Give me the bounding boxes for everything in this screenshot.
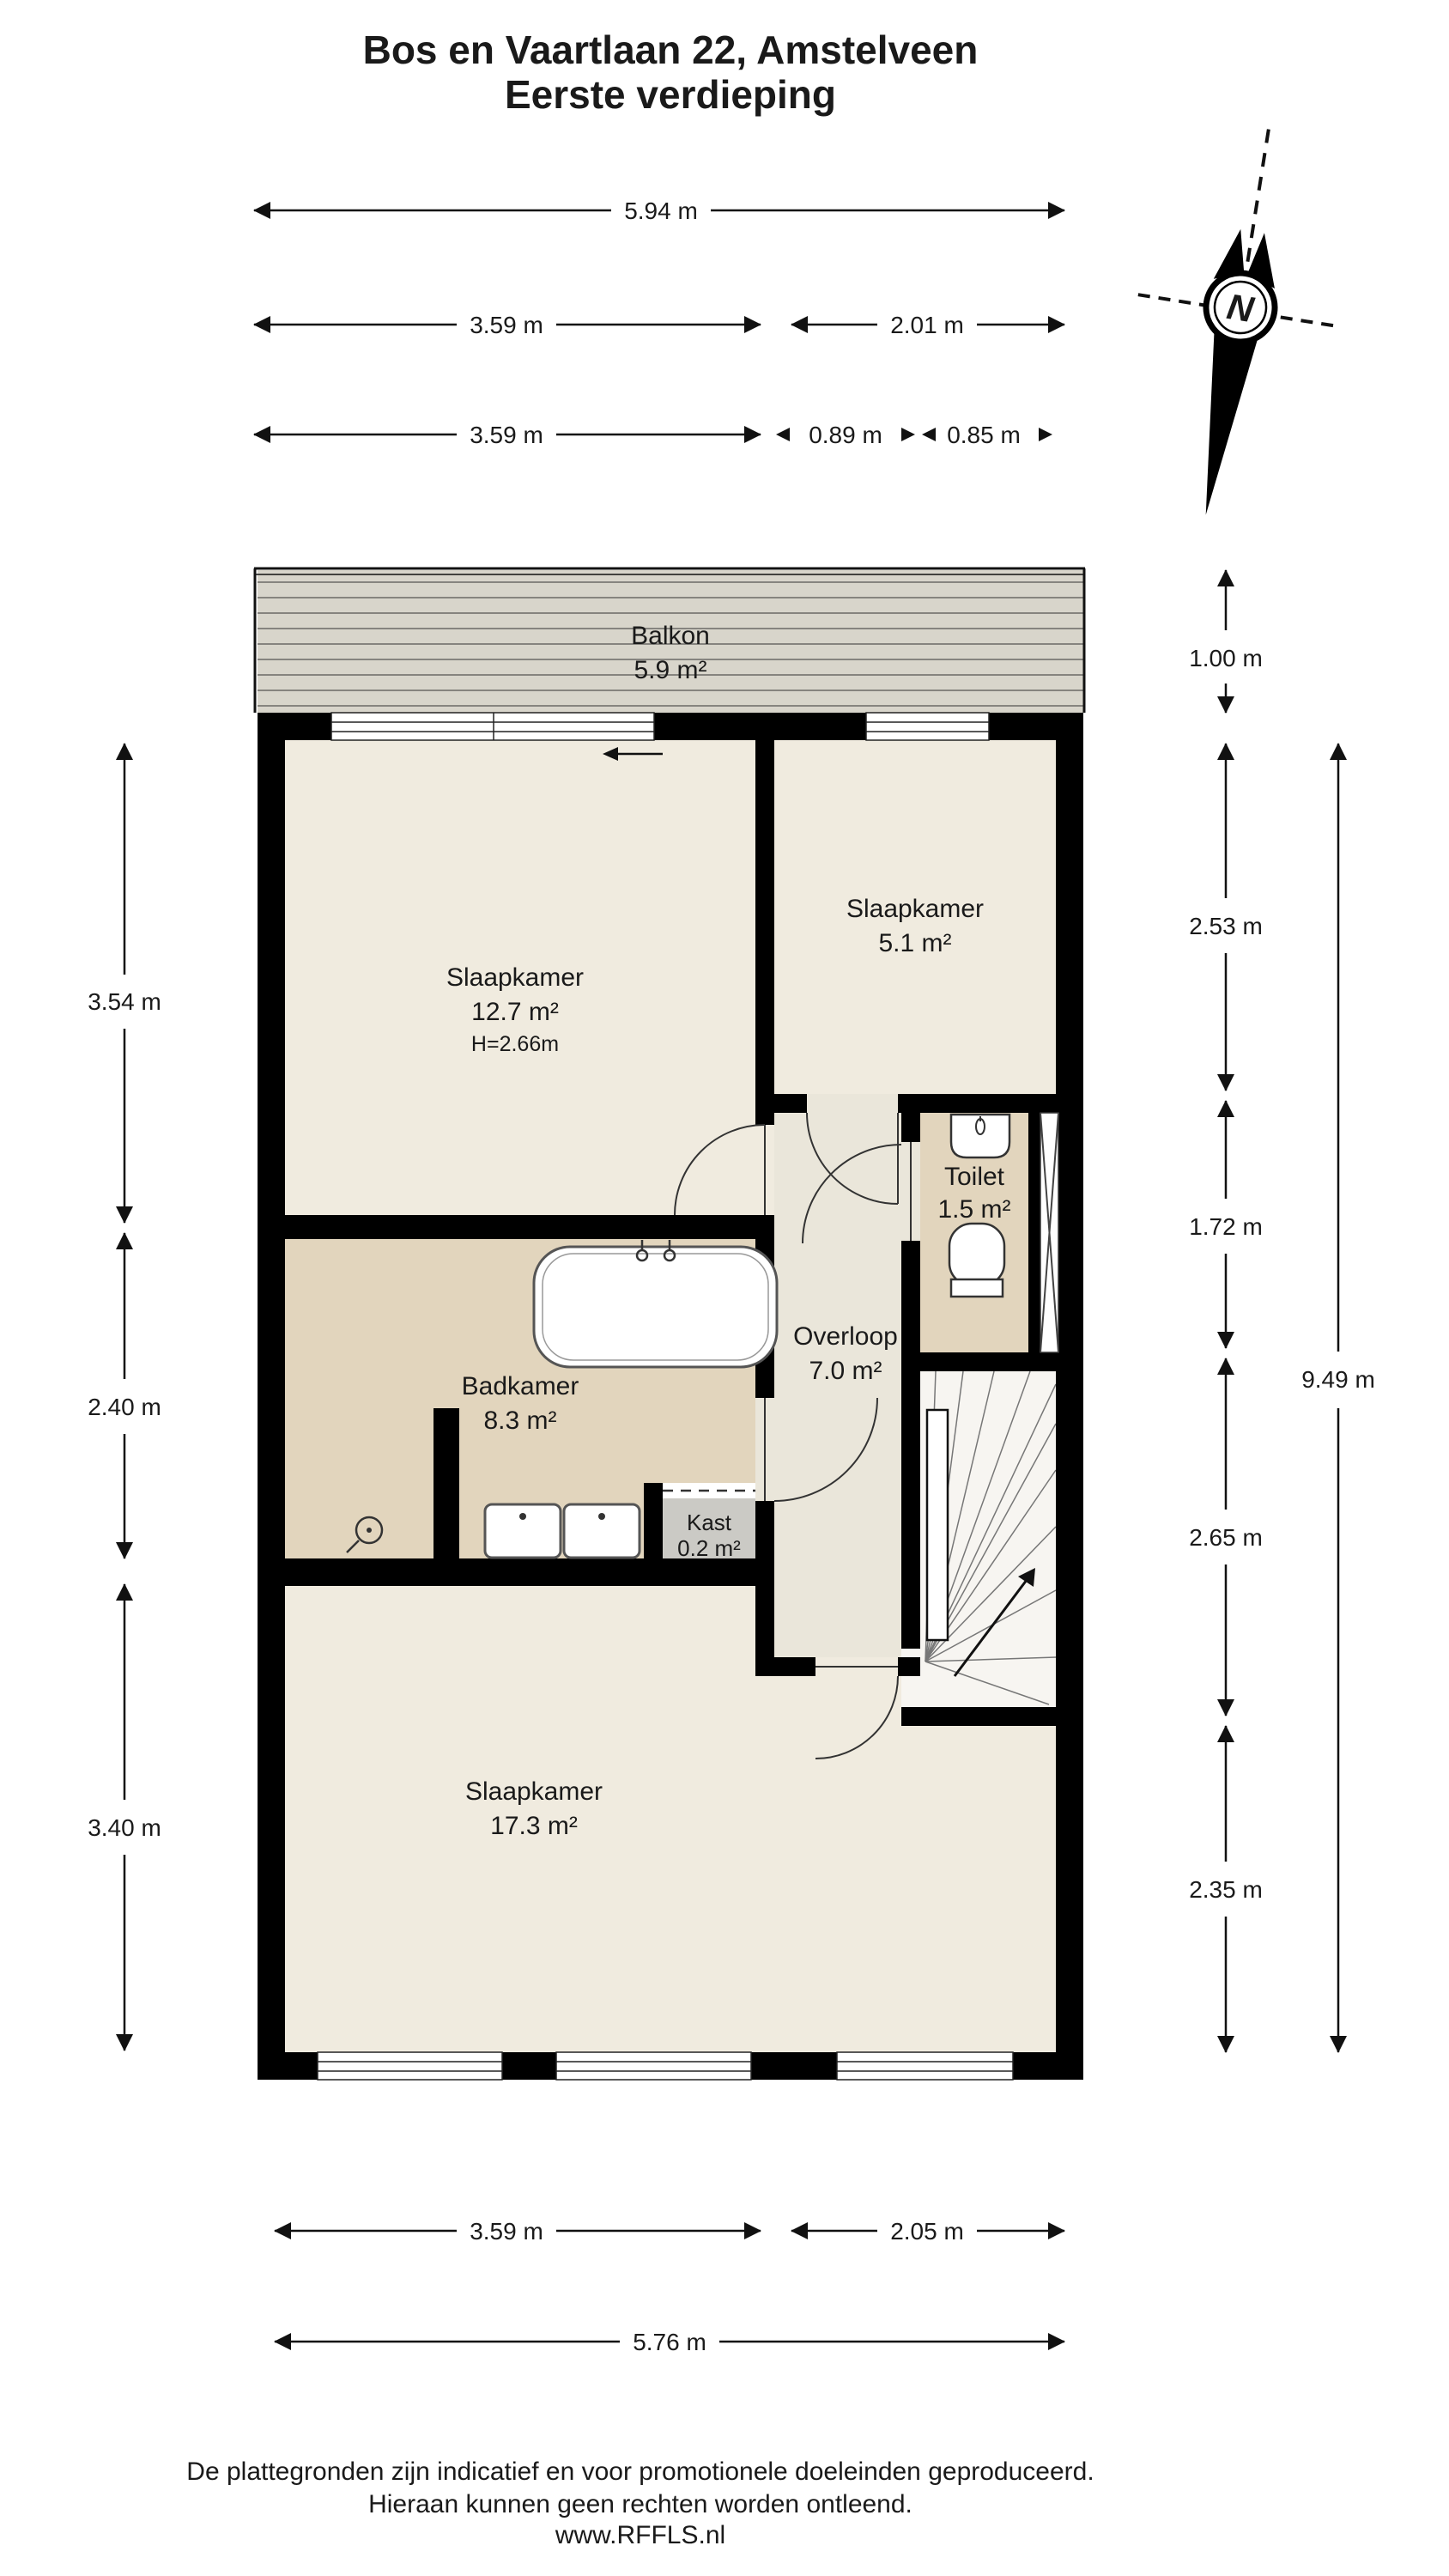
dimension-right-column: 1.00 m 2.53 m 1.72 m 2.65 m 2.35 m [1189,570,1263,2052]
wall-bathroom-bottom [285,1558,755,1586]
dim-left-1: 2.40 m [88,1394,161,1420]
dim-top-left-label: 3.59 m [470,312,543,338]
room-balcony: Balkon 5.9 m² [254,568,1085,713]
closet-door-dashed [663,1483,755,1498]
wall-bedrooms-divider [755,740,774,1125]
bedroom-front-ceiling: H=2.66m [471,1032,559,1056]
window-balcony-large [331,713,654,740]
small-arrow-right-icon [901,428,915,441]
dim-right-4: 2.35 m [1189,1876,1263,1903]
footer-disclaimer: De plattegronden zijn indicatief en voor… [186,2458,1094,2549]
dim-hall-width-label: 0.89 m [809,422,882,448]
window-back-right [837,2052,1013,2080]
window-bedroom-small [866,713,989,740]
wall-closet-top-stub [644,1483,663,1498]
duct-shaft [1040,1113,1058,1352]
dim-left-2: 3.40 m [88,1814,161,1841]
bedroom-small-area: 5.1 m² [878,929,951,957]
bathtub [534,1240,777,1367]
landing-area: 7.0 m² [809,1357,882,1385]
toilet-area: 1.5 m² [937,1195,1010,1224]
dim-bottom-left-label: 3.59 m [470,2218,543,2245]
dim-right-3: 2.65 m [1189,1524,1263,1551]
dim-left-0: 3.54 m [88,988,161,1015]
bathroom-name: Badkamer [462,1372,579,1400]
wall-bedroom-small-bottom-a [774,1094,807,1113]
dimension-top-row2: 3.59 m 2.01 m [254,312,1064,338]
wall-bathroom-top [285,1215,755,1239]
wall-bathroom-right-lower [755,1501,774,1676]
bedroom-front-area: 12.7 m² [471,998,559,1026]
bedroom-small-name: Slaapkamer [846,895,984,923]
footer-line2: Hieraan kunnen geen rechten worden ontle… [368,2490,912,2518]
footer-line3: www.RFFLS.nl [555,2521,725,2549]
dim-bottom-total-label: 5.76 m [633,2329,706,2355]
dimension-bottom-row1: 3.59 m 2.05 m [275,2218,1064,2245]
toilet-sink [951,1115,1009,1157]
wall-landing-bottom-b [898,1657,920,1676]
compass-north-icon: N [1106,113,1370,532]
dim-right-total-label: 9.49 m [1301,1366,1375,1393]
closet-name: Kast [687,1510,732,1535]
window-back-middle [556,2052,751,2080]
small-arrow-left-icon [922,428,936,441]
floor-stairs [901,1371,1056,1707]
dim-right-2: 1.72 m [1189,1213,1263,1240]
footer-line1: De plattegronden zijn indicatief en voor… [186,2458,1094,2486]
bedroom-back-area: 17.3 m² [490,1812,578,1840]
wall-closet-left [644,1498,663,1558]
bathroom-area: 8.3 m² [483,1406,556,1435]
wall-toilet-right [1028,1113,1040,1352]
wall-shower-partition [433,1408,459,1558]
small-arrow-right-icon [1039,428,1052,441]
floor-plan-page: Bos en Vaartlaan 22, Amstelveen Eerste v… [0,0,1449,2576]
small-arrow-left-icon [776,428,790,441]
toilet-name: Toilet [944,1163,1005,1191]
wall-landing-bottom-a [774,1657,815,1676]
closet-area: 0.2 m² [677,1535,741,1561]
dimension-right-total: 9.49 m [1301,744,1375,2052]
dim-top-total-label: 5.94 m [624,197,698,224]
title-line2: Eerste verdieping [505,72,836,117]
dimension-top-row3: 3.59 m 0.89 m 0.85 m [254,422,1052,448]
dim-bottom-right-label: 2.05 m [890,2218,964,2245]
toilet-bowl [949,1224,1004,1297]
title-line1: Bos en Vaartlaan 22, Amstelveen [363,27,979,72]
dim-right-1: 2.53 m [1189,913,1263,939]
dimension-left-column: 3.54 m 2.40 m 3.40 m [88,744,161,2050]
dim-toilet-width-label: 0.85 m [947,422,1021,448]
wall-stairs-bottom [901,1707,1083,1726]
dim-top3-left-label: 3.59 m [470,422,543,448]
wall-stairs-left [901,1371,920,1649]
bedroom-back-name: Slaapkamer [465,1777,603,1806]
wall-toilet-left-lower [901,1241,920,1371]
balcony-name-label: Balkon [631,622,710,650]
wall-exterior-right [1056,713,1083,2080]
bedroom-front-name: Slaapkamer [446,963,584,992]
landing-name: Overloop [793,1322,898,1351]
dimension-top-total: 5.94 m [254,197,1064,224]
wall-exterior-left [258,713,285,2080]
window-back-left [318,2052,502,2080]
dimension-bottom-total: 5.76 m [275,2329,1064,2355]
balcony-area-label: 5.9 m² [634,656,706,684]
wall-toilet-bottom [901,1352,1083,1371]
stair-handrail [927,1410,948,1640]
dim-top-right-label: 2.01 m [890,312,964,338]
wall-toilet-left-upper [901,1113,920,1142]
dim-right-0: 1.00 m [1189,645,1263,671]
wall-bedroom-small-bottom-b [898,1094,1083,1113]
page-title: Bos en Vaartlaan 22, Amstelveen Eerste v… [363,27,979,117]
